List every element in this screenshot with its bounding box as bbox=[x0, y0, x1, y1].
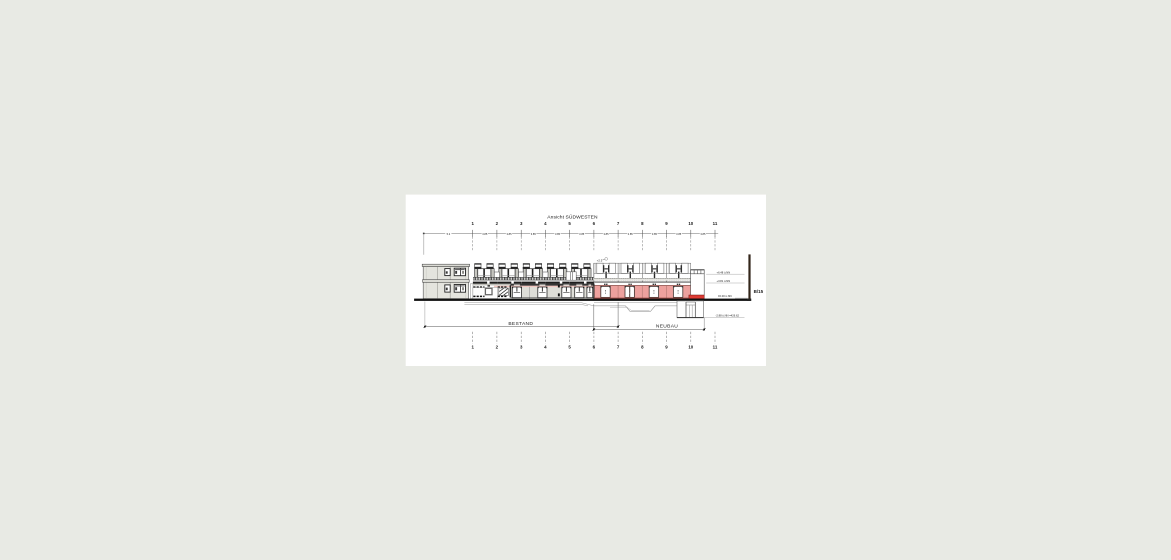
svg-text:+3.81 ü.NN: +3.81 ü.NN bbox=[717, 279, 731, 283]
svg-text:3.85: 3.85 bbox=[506, 232, 512, 236]
svg-text:3.85: 3.85 bbox=[579, 232, 585, 236]
svg-text:BESTAND: BESTAND bbox=[508, 321, 533, 327]
svg-text:B/15: B/15 bbox=[754, 289, 764, 294]
svg-text:3.85: 3.85 bbox=[531, 232, 537, 236]
svg-text:3.85: 3.85 bbox=[652, 232, 658, 236]
svg-text:NEUBAU: NEUBAU bbox=[656, 324, 678, 330]
svg-text:3.85: 3.85 bbox=[700, 232, 706, 236]
svg-text:10: 10 bbox=[688, 221, 693, 226]
svg-text:-2.88 ü.NN =426.62: -2.88 ü.NN =426.62 bbox=[716, 314, 740, 318]
svg-text:10: 10 bbox=[688, 344, 693, 349]
svg-text:11: 11 bbox=[713, 344, 718, 349]
svg-text:+2.5: +2.5 bbox=[597, 258, 603, 262]
svg-text:+6.48 ü.NN: +6.48 ü.NN bbox=[717, 270, 731, 274]
svg-text:±0.00 ü.NN: ±0.00 ü.NN bbox=[718, 294, 732, 298]
svg-text:Ansicht SÜDWESTEN: Ansicht SÜDWESTEN bbox=[547, 214, 598, 221]
svg-text:5.2: 5.2 bbox=[447, 232, 451, 236]
svg-text:3.85: 3.85 bbox=[482, 232, 488, 236]
svg-text:11: 11 bbox=[713, 221, 718, 226]
svg-text:3.85: 3.85 bbox=[628, 232, 634, 236]
svg-text:3.85: 3.85 bbox=[555, 232, 561, 236]
svg-text:3.85: 3.85 bbox=[603, 232, 609, 236]
svg-text:3.85: 3.85 bbox=[676, 232, 682, 236]
